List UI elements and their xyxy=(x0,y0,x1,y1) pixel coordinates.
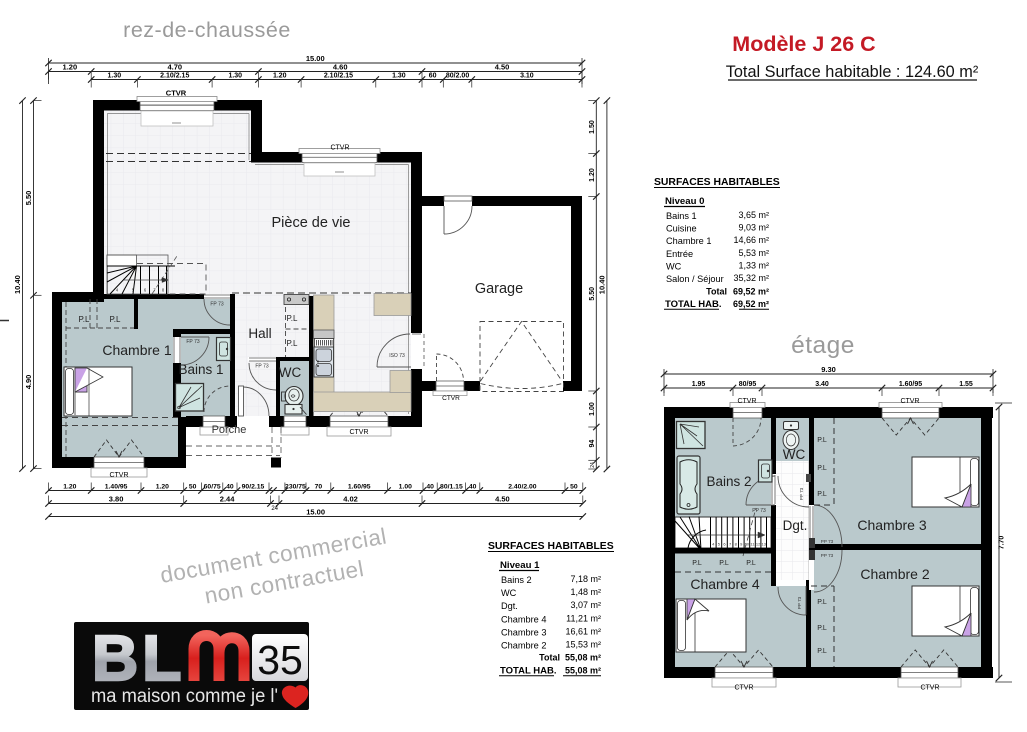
svg-text:4.70: 4.70 xyxy=(167,62,182,71)
svg-text:Total: Total xyxy=(539,653,560,663)
svg-text:Total: Total xyxy=(706,287,727,297)
svg-text:1.95: 1.95 xyxy=(692,381,706,388)
svg-text:TOTAL HAB.: TOTAL HAB. xyxy=(665,299,721,310)
svg-text:P.L: P.L xyxy=(746,560,756,567)
svg-text:11,21 m²: 11,21 m² xyxy=(566,613,601,623)
svg-text:SURFACES HABITABLES: SURFACES HABITABLES xyxy=(654,177,780,188)
svg-text:15.00: 15.00 xyxy=(306,507,325,516)
svg-text:Dgt.: Dgt. xyxy=(501,601,518,611)
svg-text:1.20: 1.20 xyxy=(63,483,76,490)
svg-text:80/2.00: 80/2.00 xyxy=(446,72,469,79)
svg-text:15.00: 15.00 xyxy=(306,54,325,63)
svg-text:1.40/95: 1.40/95 xyxy=(105,483,128,490)
svg-text:1.00: 1.00 xyxy=(589,402,596,416)
svg-text:16,61 m²: 16,61 m² xyxy=(565,626,601,636)
svg-text:P.L: P.L xyxy=(287,339,299,348)
svg-text:40: 40 xyxy=(226,483,234,490)
svg-text:CTVR: CTVR xyxy=(349,429,368,436)
svg-text:4.60: 4.60 xyxy=(333,62,348,71)
svg-text:CTVR: CTVR xyxy=(442,395,460,402)
svg-text:5.50: 5.50 xyxy=(589,287,596,301)
svg-text:Pièce de vie: Pièce de vie xyxy=(272,215,351,231)
svg-text:1.00: 1.00 xyxy=(399,483,412,490)
svg-text:5.50: 5.50 xyxy=(24,191,33,206)
svg-text:Bains 1: Bains 1 xyxy=(178,362,223,377)
svg-text:Chambre 4: Chambre 4 xyxy=(501,614,546,624)
svg-text:Salon / Séjour: Salon / Séjour xyxy=(666,274,724,284)
svg-text:60/75: 60/75 xyxy=(204,483,221,490)
svg-text:Cuisine: Cuisine xyxy=(666,224,697,234)
svg-text:50: 50 xyxy=(570,483,578,490)
svg-text:Bains 2: Bains 2 xyxy=(501,575,532,585)
svg-text:3,65 m²: 3,65 m² xyxy=(738,210,769,220)
svg-text:55,08 m²: 55,08 m² xyxy=(565,666,601,676)
svg-text:SURFACES HABITABLES: SURFACES HABITABLES xyxy=(488,541,614,552)
svg-text:7,18 m²: 7,18 m² xyxy=(570,574,601,584)
svg-text:P.L: P.L xyxy=(817,648,827,655)
svg-text:1.60/95: 1.60/95 xyxy=(348,483,371,490)
svg-text:BL: BL xyxy=(92,622,185,694)
svg-text:2.10/2.15: 2.10/2.15 xyxy=(324,72,353,79)
svg-text:69,52 m²: 69,52 m² xyxy=(733,299,769,309)
svg-text:CTVR: CTVR xyxy=(330,145,349,152)
svg-text:CTVR: CTVR xyxy=(109,472,128,479)
svg-text:35: 35 xyxy=(257,637,303,683)
svg-text:40: 40 xyxy=(426,483,434,490)
svg-text:24: 24 xyxy=(271,506,278,512)
svg-text:3.10: 3.10 xyxy=(520,72,534,79)
svg-text:CTVR: CTVR xyxy=(737,398,756,405)
svg-text:P.L: P.L xyxy=(79,315,91,324)
svg-text:3,07 m²: 3,07 m² xyxy=(570,600,601,610)
svg-text:12: 12 xyxy=(756,542,761,547)
svg-text:Chambre 2: Chambre 2 xyxy=(860,566,929,582)
svg-text:2.10/2.15: 2.10/2.15 xyxy=(160,72,189,79)
svg-text:1,48 m²: 1,48 m² xyxy=(570,587,601,597)
svg-text:Chambre 2: Chambre 2 xyxy=(501,641,546,651)
svg-text:Chambre 3: Chambre 3 xyxy=(857,517,926,533)
svg-text:94: 94 xyxy=(589,440,596,448)
svg-text:FP 73: FP 73 xyxy=(210,302,223,308)
svg-text:24: 24 xyxy=(590,462,596,468)
svg-text:Bains 2: Bains 2 xyxy=(706,474,751,489)
svg-text:Niveau 1: Niveau 1 xyxy=(500,560,540,571)
svg-text:Garage: Garage xyxy=(475,281,523,297)
svg-text:4.90: 4.90 xyxy=(24,375,33,390)
svg-text:P.L: P.L xyxy=(817,625,827,632)
svg-text:9.30: 9.30 xyxy=(821,365,836,374)
svg-text:CTVR: CTVR xyxy=(900,398,919,405)
svg-text:WC: WC xyxy=(501,588,517,598)
svg-text:4.02: 4.02 xyxy=(343,494,358,503)
svg-text:Dgt.: Dgt. xyxy=(783,518,808,533)
svg-text:1.30: 1.30 xyxy=(392,72,406,79)
svg-text:1.30: 1.30 xyxy=(107,72,121,79)
svg-text:1.20: 1.20 xyxy=(589,168,596,182)
svg-text:PP 73: PP 73 xyxy=(752,508,766,514)
svg-text:CTVR: CTVR xyxy=(734,685,753,692)
svg-text:60: 60 xyxy=(429,72,437,79)
svg-text:1.20: 1.20 xyxy=(156,483,169,490)
svg-text:1.30: 1.30 xyxy=(228,72,242,79)
svg-text:1,33 m²: 1,33 m² xyxy=(738,260,769,270)
svg-text:Niveau 0: Niveau 0 xyxy=(665,196,704,207)
svg-text:CTVR: CTVR xyxy=(920,685,939,692)
svg-text:FP 73: FP 73 xyxy=(186,339,199,345)
svg-text:3.40: 3.40 xyxy=(815,381,829,388)
svg-text:Chambre 3: Chambre 3 xyxy=(501,627,546,637)
svg-text:4.50: 4.50 xyxy=(495,494,510,503)
svg-text:1.20: 1.20 xyxy=(63,62,78,71)
svg-text:10.40: 10.40 xyxy=(13,275,22,294)
svg-text:Porche: Porche xyxy=(212,424,247,436)
svg-text:Total Surface habitable : 124.: Total Surface habitable : 124.60 m² xyxy=(726,63,979,81)
svg-text:Chambre 1: Chambre 1 xyxy=(666,236,711,246)
svg-text:WC: WC xyxy=(279,365,302,380)
svg-text:Bains 1: Bains 1 xyxy=(666,211,697,221)
svg-text:WC: WC xyxy=(666,261,682,271)
svg-text:4.50: 4.50 xyxy=(495,62,510,71)
svg-text:70: 70 xyxy=(315,483,323,490)
svg-text:P.L: P.L xyxy=(817,599,827,606)
svg-text:PP 73: PP 73 xyxy=(821,553,834,558)
svg-text:FP 73: FP 73 xyxy=(255,364,268,370)
svg-text:P.L: P.L xyxy=(287,314,299,323)
svg-text:ma maison comme je l': ma maison comme je l' xyxy=(91,686,278,707)
svg-text:90/2.15: 90/2.15 xyxy=(242,483,265,490)
svg-text:PP 73: PP 73 xyxy=(797,596,802,609)
svg-text:55,08 m²: 55,08 m² xyxy=(565,653,601,663)
svg-text:P.L: P.L xyxy=(110,315,122,324)
svg-text:Chambre 4: Chambre 4 xyxy=(690,576,759,592)
svg-text:P.L: P.L xyxy=(692,560,702,567)
svg-text:PP 73: PP 73 xyxy=(799,487,804,500)
svg-text:P.L: P.L xyxy=(817,437,827,444)
svg-text:2.40/2.00: 2.40/2.00 xyxy=(508,483,537,490)
svg-text:35,32 m²: 35,32 m² xyxy=(733,273,769,283)
svg-text:10: 10 xyxy=(745,542,750,547)
svg-text:13: 13 xyxy=(761,542,766,547)
svg-text:69,52 m²: 69,52 m² xyxy=(733,287,769,297)
svg-text:P.L: P.L xyxy=(817,465,827,472)
svg-text:rez-de-chaussée: rez-de-chaussée xyxy=(123,18,291,42)
svg-text:80/1.15: 80/1.15 xyxy=(440,483,463,490)
svg-text:7.70: 7.70 xyxy=(999,536,1006,550)
svg-text:P.L: P.L xyxy=(719,560,729,567)
svg-text:WC: WC xyxy=(783,447,806,462)
svg-text:1.20: 1.20 xyxy=(273,72,287,79)
svg-text:3.80: 3.80 xyxy=(109,494,124,503)
svg-text:15,53 m²: 15,53 m² xyxy=(565,640,601,650)
svg-text:230/75: 230/75 xyxy=(285,483,306,490)
svg-text:40: 40 xyxy=(469,483,477,490)
svg-text:80/95: 80/95 xyxy=(739,381,757,388)
svg-text:2.44: 2.44 xyxy=(220,494,235,503)
svg-text:Hall: Hall xyxy=(248,326,271,341)
svg-text:1.50: 1.50 xyxy=(589,120,596,134)
svg-text:50: 50 xyxy=(189,483,197,490)
svg-text:1.55: 1.55 xyxy=(959,381,973,388)
svg-text:1.60/95: 1.60/95 xyxy=(899,381,922,388)
svg-text:Modèle J 26 C: Modèle J 26 C xyxy=(732,32,875,56)
svg-text:9,03 m²: 9,03 m² xyxy=(738,223,769,233)
svg-text:PP 73: PP 73 xyxy=(821,539,834,544)
svg-text:TOTAL HAB.: TOTAL HAB. xyxy=(500,666,556,677)
svg-text:Chambre 1: Chambre 1 xyxy=(102,342,171,358)
svg-text:Entrée: Entrée xyxy=(666,249,693,259)
svg-text:étage: étage xyxy=(791,332,855,359)
svg-text:CTVR: CTVR xyxy=(166,89,187,98)
svg-text:ISO 73: ISO 73 xyxy=(389,353,405,359)
svg-text:10.40: 10.40 xyxy=(597,275,606,294)
svg-text:14,66 m²: 14,66 m² xyxy=(733,235,769,245)
svg-text:5,53 m²: 5,53 m² xyxy=(738,248,769,258)
svg-text:P.L: P.L xyxy=(817,491,827,498)
